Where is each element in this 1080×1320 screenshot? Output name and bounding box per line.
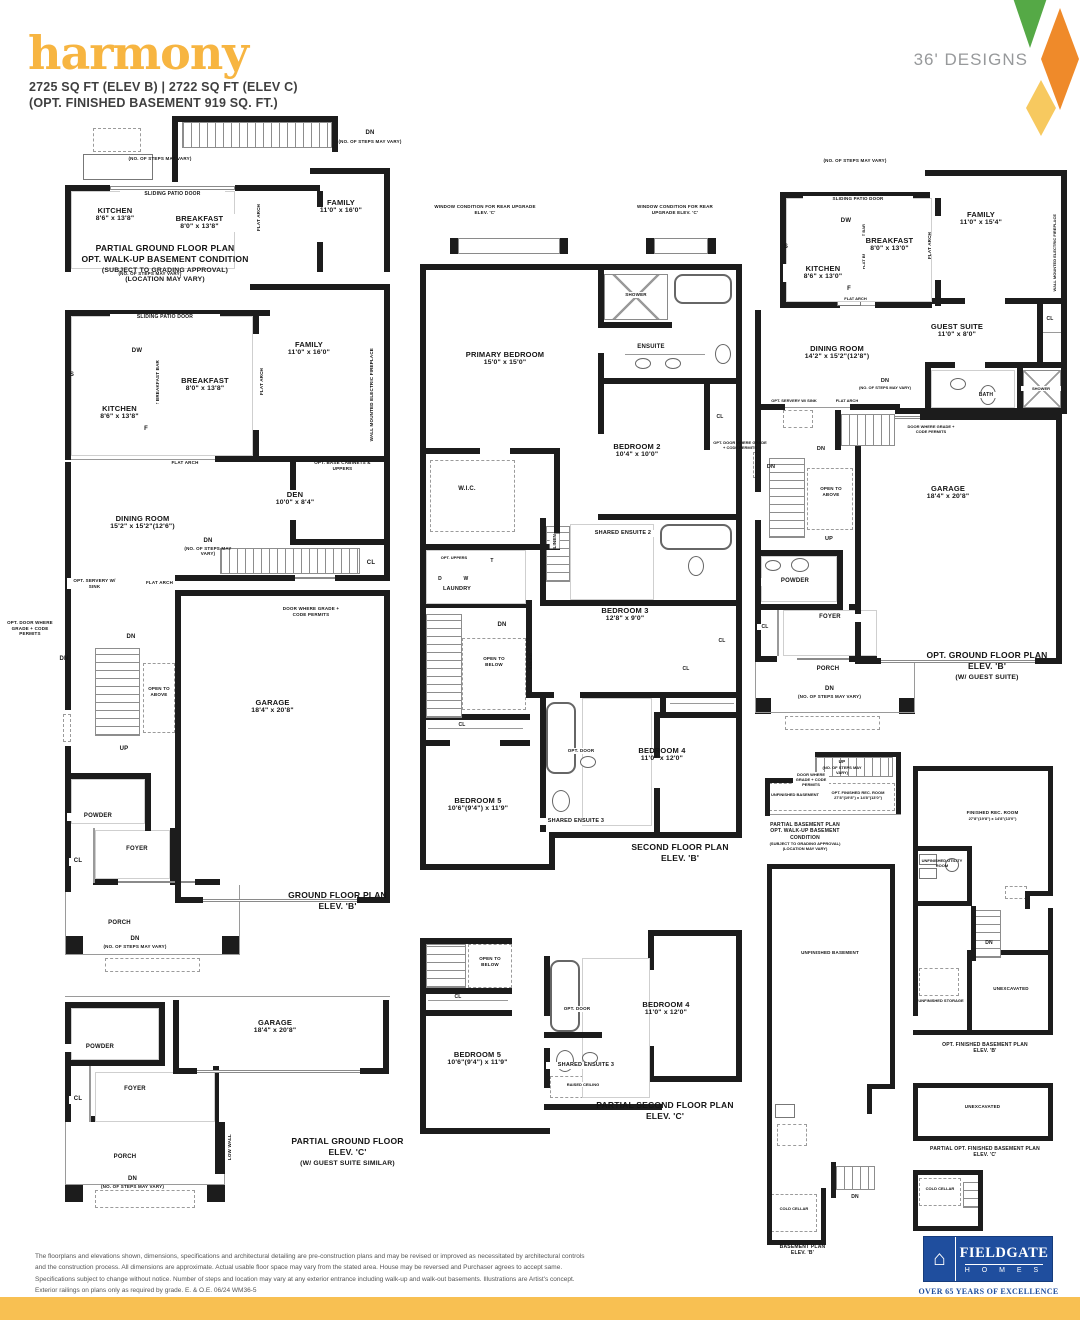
txt: 11'0" x 16'0" <box>263 349 355 357</box>
basement-line: (OPT. FINISHED BASEMENT 919 SQ. FT.) <box>29 96 278 110</box>
room-label-family: FAMILY 11'0" x 15'4" <box>937 210 1025 228</box>
txt: DN <box>777 686 882 694</box>
fridge-label: F <box>137 426 155 434</box>
stairs <box>840 414 895 446</box>
wall <box>549 832 742 838</box>
room-label-rec: FINISHED REC. ROOM 27'8"(19'8") x 14'8"(… <box>935 810 1050 821</box>
tub-label: T <box>486 558 498 564</box>
txt: FAMILY <box>297 198 385 207</box>
wall <box>335 575 390 581</box>
cold-cellar-label: COLD CELLAR <box>775 1206 813 1211</box>
caption-ground-floor-b: GROUND FLOOR PLAN ELEV. 'B' <box>265 890 410 913</box>
stairs <box>95 648 140 736</box>
wall <box>598 514 742 520</box>
room-label-dining: DINING ROOM 15'2" x 15'2"(12'6") <box>85 514 200 532</box>
room-label-bed4: BEDROOM 4 11'0" x 12'0" <box>610 1000 722 1018</box>
room-label-kitchen: KITCHEN 8'6" x 13'0" <box>783 264 863 282</box>
txt: KITCHEN <box>79 404 160 413</box>
wall <box>736 264 742 836</box>
txt: BREAKFAST <box>162 376 248 385</box>
unexcavated-label: UNEXCAVATED <box>975 986 1047 992</box>
wall <box>598 353 604 384</box>
wall <box>420 1010 512 1016</box>
fireplace-label: WALL MOUNTED ELECTRIC FIREPLACE <box>369 348 375 441</box>
txt: BEDROOM 4 <box>610 1000 722 1009</box>
wall <box>755 604 843 610</box>
txt: BREAKFAST <box>849 236 930 245</box>
wall <box>925 368 931 410</box>
cold-cellar-label: COLD CELLAR <box>921 1186 959 1191</box>
dashed-outline <box>143 663 175 733</box>
ensuite-label: ENSUITE <box>616 344 686 352</box>
steps-note: (NO. OF STEPS MAY VARY) <box>810 158 900 164</box>
wall <box>93 879 118 885</box>
plan-basement-b: UNFINISHED BASEMENT DN COLD CELLAR BASEM… <box>755 858 905 1256</box>
wall <box>1048 908 1053 1035</box>
wall <box>890 864 895 1088</box>
sink-label: S <box>781 244 791 252</box>
closet-label: CL <box>69 858 87 866</box>
txt: BEDROOM 5 <box>420 1050 535 1059</box>
wall <box>920 414 1062 420</box>
door-opening <box>295 577 335 579</box>
wall <box>175 590 181 903</box>
servery-label: OPT. SERVERY W/ SINK <box>67 578 122 589</box>
dn-label: DN <box>490 622 514 630</box>
window <box>458 238 560 254</box>
dashed-outline <box>93 128 141 152</box>
wall <box>420 1128 550 1134</box>
dn-label: DN <box>53 656 75 664</box>
window-condition-note: WINDOW CONDITION FOR REAR UPGRADE ELEV. … <box>430 204 540 215</box>
bathtub <box>660 524 732 550</box>
stairs <box>426 614 462 718</box>
txt: OPT. GROUND FLOOR PLAN <box>903 650 1071 661</box>
foyer-label: FOYER <box>105 1086 165 1094</box>
thin-line <box>785 407 850 408</box>
dn-steps-label: DN (NO. OF STEPS MAY VARY) <box>80 1176 185 1189</box>
dashed-outline <box>1005 886 1027 899</box>
wall <box>560 238 568 254</box>
wall <box>526 600 532 698</box>
thin-line <box>428 1000 508 1001</box>
servery-label: OPT. SERVERY W/ SINK <box>769 398 819 403</box>
bathtub <box>546 702 576 774</box>
plan-ground-floor-b: (NO. OF STEPS MAY VARY) SLIDING PATIO DO… <box>65 268 390 980</box>
txt: BEDROOM 5 <box>422 796 534 805</box>
opt-base-cabinets-label: OPT. BASE CABINETS & UPPERS <box>305 460 380 471</box>
txt: FAMILY <box>263 340 355 349</box>
txt: (W/ GUEST SUITE) <box>903 673 1071 682</box>
txt: 14'2" x 15'2"(12'8") <box>777 353 897 361</box>
tile-floor <box>71 1008 159 1060</box>
wall <box>913 1170 918 1228</box>
txt: BEDROOM 3 <box>565 606 685 615</box>
wall <box>913 901 971 906</box>
unfinished-basement-label: UNFINISHED BASEMENT <box>769 792 821 797</box>
fixture <box>791 558 809 572</box>
wall <box>736 930 742 1082</box>
door-grade-note: DOOR WHERE GRADE + CODE PERMITS <box>901 424 961 434</box>
sqft-line: 2725 SQ FT (ELEV B) | 2722 SQ FT (ELEV C… <box>29 80 298 94</box>
thin-line <box>239 885 240 954</box>
txt: DN <box>85 936 185 944</box>
door-opening <box>197 1070 360 1073</box>
wall <box>65 1066 71 1122</box>
txt: 15'2" x 15'2"(12'6") <box>85 523 200 531</box>
room-label-garage: GARAGE 18'4" x 20'8" <box>883 484 1013 502</box>
open-to-below-label: OPEN TO BELOW <box>470 956 510 967</box>
dashed-outline <box>105 958 200 972</box>
room-label-bed5: BEDROOM 5 10'6"(9'4") x 11'9" <box>420 1050 535 1068</box>
wall <box>598 322 672 328</box>
room-label-kitchen: KITCHEN 8'6" x 13'8" <box>77 404 162 422</box>
green-diamond-icon <box>1013 0 1047 48</box>
thin-line <box>428 728 523 729</box>
wall <box>173 1000 179 1074</box>
thin-line <box>65 1122 66 1184</box>
house-icon: ⌂ <box>924 1237 956 1281</box>
txt: 18'4" x 20'8" <box>215 707 330 715</box>
wall <box>290 462 296 490</box>
door-grade-note: DOOR WHERE GRADE + CODE PERMITS <box>277 606 345 617</box>
txt: (NO. OF STEPS MAY VARY) <box>85 944 185 950</box>
dashed-outline <box>771 1194 817 1232</box>
wall <box>646 238 654 254</box>
window <box>110 186 235 190</box>
linen-label: LINEN <box>550 534 560 549</box>
shared-ensuite3-label: SHARED ENSUITE 3 <box>546 1062 626 1069</box>
wall <box>913 1030 971 1035</box>
flat-arch-label: FLAT ARCH <box>927 232 933 259</box>
wall <box>755 310 761 406</box>
wall <box>253 316 259 334</box>
txt: ELEV. 'B' <box>910 1048 1060 1054</box>
dashed-outline <box>95 1190 195 1208</box>
yellow-diamond-icon <box>1026 80 1056 136</box>
sliding-door-label: SLIDING PATIO DOOR <box>110 314 220 320</box>
wic-label: W.I.C. <box>432 486 502 494</box>
up-label: UP <box>819 536 839 543</box>
wall <box>1048 766 1053 896</box>
fireplace-label: WALL MOUNTED ELECTRIC FIREPLACE <box>1052 214 1057 291</box>
fixture <box>635 358 651 369</box>
wall <box>967 846 972 906</box>
wall <box>660 712 742 718</box>
txt: DINING ROOM <box>777 344 897 353</box>
wall <box>65 1060 165 1066</box>
steps-note: (NO. OF STEPS MAY VARY) <box>335 139 405 145</box>
wall <box>704 384 710 450</box>
wall <box>65 1002 165 1008</box>
thin-line <box>65 996 390 997</box>
designs-label: 36' DESIGNS <box>914 50 1028 70</box>
wall <box>250 284 390 290</box>
txt: 8'0" x 13'8" <box>162 385 248 393</box>
txt: 8'6" x 13'8" <box>77 215 153 223</box>
txt: DN <box>80 1176 185 1184</box>
flat-arch-label: FLAT ARCH <box>259 368 265 395</box>
dn-label: DN <box>843 1194 867 1200</box>
wall <box>420 448 480 454</box>
txt: (W/ GUEST SUITE SIMILAR) <box>260 1159 435 1168</box>
door-opening <box>118 881 195 883</box>
porch-label: PORCH <box>87 920 152 928</box>
porch-label: PORCH <box>793 666 863 674</box>
caption-opt-finished-basement-b: OPT. FINISHED BASEMENT PLAN ELEV. 'B' <box>910 1042 1060 1055</box>
closet-label: CL <box>757 624 773 630</box>
room-label-kitchen: KITCHEN 8'6" x 13'8" <box>75 206 155 224</box>
wall <box>985 362 1067 368</box>
txt: PARTIAL GROUND FLOOR PLAN <box>60 243 270 254</box>
thin-line <box>65 954 240 955</box>
wall <box>420 988 512 994</box>
raised-ceiling-label: RAISED CEILING <box>560 1082 606 1087</box>
opt-door-label: OPT. DOOR <box>556 1006 598 1012</box>
wall <box>175 590 390 596</box>
sink-label: S <box>66 372 78 380</box>
txt: BREAKFAST <box>159 214 240 223</box>
room-label-den: DEN 10'0" x 8'4" <box>250 490 340 508</box>
flat-arch-label: FLAT ARCH <box>160 460 210 466</box>
wall <box>971 906 976 961</box>
wall <box>925 170 1065 176</box>
sliding-door-label: SLIDING PATIO DOOR <box>120 191 225 197</box>
txt: ELEV. 'B' <box>755 1250 850 1256</box>
wall <box>384 590 390 903</box>
open-to-above-label: OPEN TO ABOVE <box>144 686 174 697</box>
up-label: UP <box>113 746 135 754</box>
wall <box>648 930 742 936</box>
opt-door-grade-note: OPT. DOOR WHERE GRADE + CODE PERMITS <box>713 440 767 450</box>
wall <box>831 1162 836 1198</box>
txt: and the construction process. All dimens… <box>35 1262 635 1273</box>
wall <box>420 264 742 270</box>
window <box>654 238 708 254</box>
dashed-outline <box>919 968 959 996</box>
txt: PRIMARY BEDROOM <box>445 350 565 359</box>
wall <box>172 116 178 182</box>
dishwasher-label: DW <box>125 348 149 356</box>
wall <box>755 520 761 662</box>
plan-opt-finished-basement-b: FINISHED REC. ROOM 27'8"(19'8") x 14'8"(… <box>905 758 1065 1068</box>
txt: KITCHEN <box>785 264 861 273</box>
shared-ensuite2-label: SHARED ENSUITE 2 <box>588 530 658 537</box>
railing-label: RAILING <box>528 653 533 669</box>
dishwasher-label: DW <box>835 218 857 226</box>
steps-note: (NO. OF STEPS MAY VARY) <box>120 156 200 162</box>
wall <box>384 284 390 460</box>
fixture <box>950 378 966 390</box>
wall <box>837 550 843 608</box>
tile-floor <box>95 830 170 879</box>
foyer-label: FOYER <box>799 614 861 622</box>
wall <box>598 270 604 328</box>
wall <box>580 692 742 698</box>
stairs <box>182 122 332 148</box>
txt: BEDROOM 4 <box>606 746 718 755</box>
wall <box>654 788 660 832</box>
txt: ELEV. 'C' <box>260 1147 435 1158</box>
wall <box>978 1170 983 1228</box>
closet-label: CL <box>712 414 728 420</box>
door-grade-note: DOOR WHERE GRADE + CODE PERMITS <box>793 772 829 787</box>
fixture <box>765 560 781 571</box>
wall <box>290 520 296 545</box>
room-label-primary: PRIMARY BEDROOM 15'0" x 15'0" <box>445 350 565 368</box>
wall <box>420 938 512 944</box>
plan-partial-opt-finished-basement-c: UNEXCAVATED PARTIAL OPT. FINISHED BASEME… <box>905 1078 1065 1253</box>
wall <box>913 766 918 1016</box>
wall <box>65 773 150 779</box>
thin-line <box>777 604 779 656</box>
dn-steps-label: DN (NO. OF STEPS MAY VARY) <box>777 686 882 699</box>
wall <box>913 846 971 851</box>
wall <box>835 410 841 450</box>
opt-door-label: OPT. DOOR <box>560 748 602 754</box>
room-label-bed3: BEDROOM 3 12'8" x 9'0" <box>565 606 685 624</box>
txt: 11'0" x 15'4" <box>937 219 1025 227</box>
tile-floor <box>931 370 1015 408</box>
unfinished-storage-label: UNFINISHED STORAGE <box>917 998 965 1003</box>
wall <box>850 404 900 410</box>
fieldgate-logo: ⌂ FIELDGATE H O M E S <box>923 1236 1053 1282</box>
room-label-guest-suite: GUEST SUITE 11'0" x 8'0" <box>907 322 1007 340</box>
fixture <box>580 756 596 768</box>
plan-second-floor-b: WINDOW CONDITION FOR REAR UPGRADE ELEV. … <box>420 198 742 884</box>
unfinished-basement-label: UNFINISHED BASEMENT <box>790 950 870 956</box>
txt: 11'0" x 12'0" <box>606 755 718 763</box>
flat-arch-label: FLAT ARCH <box>827 398 867 403</box>
dashed-outline <box>63 714 71 742</box>
txt: OPT. WALK-UP BASEMENT CONDITION <box>755 828 855 841</box>
txt: DEN <box>250 490 340 499</box>
wall <box>815 752 901 757</box>
txt: (NO. OF STEPS MAY VARY) <box>855 385 915 390</box>
wall <box>310 168 390 174</box>
thin-line <box>765 814 901 815</box>
stairs <box>220 548 360 574</box>
powder-label: POWDER <box>67 813 129 821</box>
wall <box>215 1122 225 1174</box>
txt: GROUND FLOOR PLAN <box>265 890 410 901</box>
wall <box>65 462 71 588</box>
caption-partial-ground-c: PARTIAL GROUND FLOOR ELEV. 'C' (W/ GUEST… <box>260 1136 435 1168</box>
wall <box>821 1188 826 1245</box>
floorplan-sheet: { "header": { "title": "harmony", "specs… <box>0 0 1080 1320</box>
wall <box>780 302 840 308</box>
thin-line <box>93 828 95 883</box>
wall <box>755 550 843 556</box>
txt: FIELDGATE <box>960 1245 1049 1262</box>
txt: 8'6" x 13'8" <box>79 413 160 421</box>
wall <box>65 185 110 191</box>
wall <box>544 956 550 1016</box>
plan-opt-ground-guest: (NO. OF STEPS MAY VARY) SLIDING PATIO DO… <box>755 152 1067 737</box>
wall <box>420 938 426 1130</box>
txt: GARAGE <box>215 698 330 707</box>
cabinet <box>775 1104 795 1118</box>
dashed-outline <box>785 716 880 730</box>
wall <box>855 414 861 664</box>
dn-label: DN <box>979 940 999 946</box>
plan-partial-second-c: OPEN TO BELOW CL BEDROOM 5 10'6"(9'4") x… <box>420 928 742 1168</box>
txt: 10'4" x 10'0" <box>582 451 692 459</box>
txt: The floorplans and elevations shown, dim… <box>35 1251 635 1262</box>
powder-label: POWDER <box>65 1044 135 1052</box>
laundry-label: LAUNDRY <box>428 586 486 593</box>
dashed-outline <box>430 460 515 532</box>
txt: (NO. OF STEPS MAY VARY) <box>177 546 239 557</box>
txt: 11'0" x 8'0" <box>907 331 1007 339</box>
txt: ELEV. 'C' <box>905 1152 1065 1158</box>
caption-partial-basement-walkup: PARTIAL BASEMENT PLAN OPT. WALK-UP BASEM… <box>755 822 855 851</box>
thin-line <box>670 703 734 704</box>
wall <box>925 362 955 368</box>
wall <box>1048 1083 1053 1138</box>
txt: (NO. OF STEPS MAY VARY) <box>80 1184 185 1190</box>
wall <box>500 740 530 746</box>
wall <box>1037 304 1043 362</box>
stairs <box>975 910 1001 958</box>
txt: GUEST SUITE <box>907 322 1007 331</box>
dn-label: DN <box>811 446 831 453</box>
wall <box>540 518 546 606</box>
txt: 8'0" x 13'0" <box>849 245 930 253</box>
washer-label: W <box>460 576 472 582</box>
wall <box>708 238 716 254</box>
wall <box>383 1000 389 1074</box>
room-label-garage: GARAGE 18'4" x 20'8" <box>215 698 330 716</box>
caption-partial-opt-finished-basement-c: PARTIAL OPT. FINISHED BASEMENT PLAN ELEV… <box>905 1146 1065 1159</box>
tile-floor <box>582 958 650 1098</box>
txt: SECOND FLOOR PLAN <box>615 842 745 853</box>
closet-label: CL <box>678 666 694 672</box>
tile-floor <box>95 1072 215 1122</box>
plan-partial-ground-walkup: DN (NO. OF STEPS MAY VARY) (NO. OF STEPS… <box>65 112 390 277</box>
txt: OPT. WALK-UP BASEMENT CONDITION <box>60 254 270 265</box>
utility-room-label: UNFINISHED UTILITY ROOM <box>915 858 969 868</box>
caption-opt-ground-guest: OPT. GROUND FLOOR PLAN ELEV. 'B' (W/ GUE… <box>903 650 1071 682</box>
wall <box>913 1083 1053 1088</box>
dn-steps-label: DN (NO. OF STEPS MAY VARY) <box>855 378 915 390</box>
steps-note: (NO. OF STEPS MAY VARY) <box>105 271 195 277</box>
shared-ensuite3-label: SHARED ENSUITE 3 <box>534 818 618 825</box>
txt: DN <box>177 538 239 546</box>
wall <box>598 378 742 384</box>
thin-line <box>89 1066 91 1122</box>
wall <box>767 864 772 1166</box>
shower-label: SHOWER <box>615 292 657 298</box>
txt: GARAGE <box>215 1018 335 1027</box>
logo-tagline: OVER 65 YEARS OF EXCELLENCE <box>916 1287 1061 1296</box>
window-condition-note: WINDOW CONDITION FOR REAR UPGRADE ELEV. … <box>635 204 715 215</box>
sliding-door-label: SLIDING PATIO DOOR <box>803 196 913 202</box>
txt: 10'0" x 8'4" <box>250 499 340 507</box>
wall <box>175 575 295 581</box>
fixture <box>552 790 570 812</box>
room-label-breakfast: BREAKFAST 8'0" x 13'0" <box>847 236 932 254</box>
wall <box>65 588 71 710</box>
closet-label: CL <box>1043 316 1057 322</box>
wall <box>598 384 604 434</box>
room-label-family: FAMILY 11'0" x 16'0" <box>263 340 355 358</box>
dashed-outline <box>777 1124 807 1146</box>
txt: ELEV. 'B' <box>903 661 1071 672</box>
wall <box>913 1226 983 1231</box>
disclaimer: The floorplans and elevations shown, dim… <box>35 1251 635 1297</box>
flat-arch-label: FLAT ARCH <box>256 204 262 231</box>
